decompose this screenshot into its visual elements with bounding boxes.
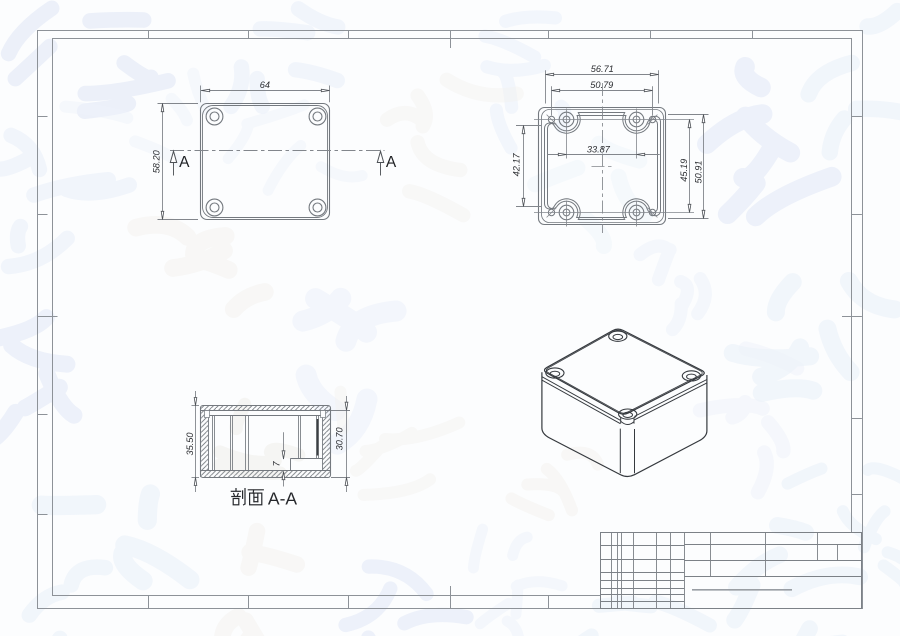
- svg-text:50.79: 50.79: [590, 80, 613, 90]
- svg-text:A: A: [386, 154, 397, 171]
- svg-text:50.91: 50.91: [694, 161, 704, 184]
- svg-text:35.50: 35.50: [185, 432, 195, 456]
- svg-text:30.70: 30.70: [335, 427, 345, 451]
- svg-text:33.87: 33.87: [587, 144, 611, 154]
- svg-text:56.71: 56.71: [591, 64, 614, 74]
- svg-text:64: 64: [260, 80, 270, 90]
- svg-text:58.20: 58.20: [151, 149, 161, 173]
- svg-text:42.17: 42.17: [512, 153, 522, 177]
- svg-text:45.19: 45.19: [679, 159, 689, 182]
- svg-text:7: 7: [272, 460, 282, 466]
- svg-text:A: A: [179, 154, 190, 171]
- svg-text:A-A: A-A: [268, 489, 298, 509]
